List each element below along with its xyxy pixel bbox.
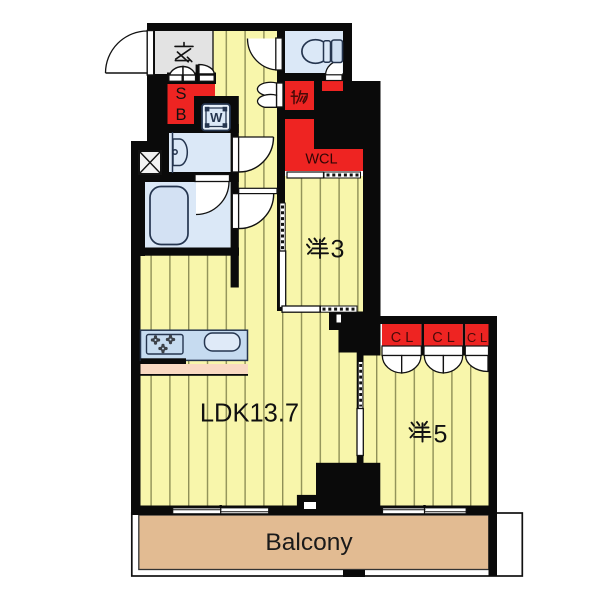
svg-text:C L: C L: [432, 330, 455, 346]
svg-text:W: W: [210, 110, 223, 125]
svg-text:B: B: [175, 106, 186, 124]
svg-text:3: 3: [331, 235, 345, 263]
svg-text:S: S: [175, 85, 186, 103]
svg-text:WCL: WCL: [305, 151, 337, 167]
svg-text:C L: C L: [467, 330, 487, 345]
svg-text:Balcony: Balcony: [265, 529, 353, 556]
svg-text:LDK13.7: LDK13.7: [200, 399, 299, 427]
svg-text:5: 5: [434, 421, 448, 449]
svg-text:C L: C L: [391, 330, 414, 346]
